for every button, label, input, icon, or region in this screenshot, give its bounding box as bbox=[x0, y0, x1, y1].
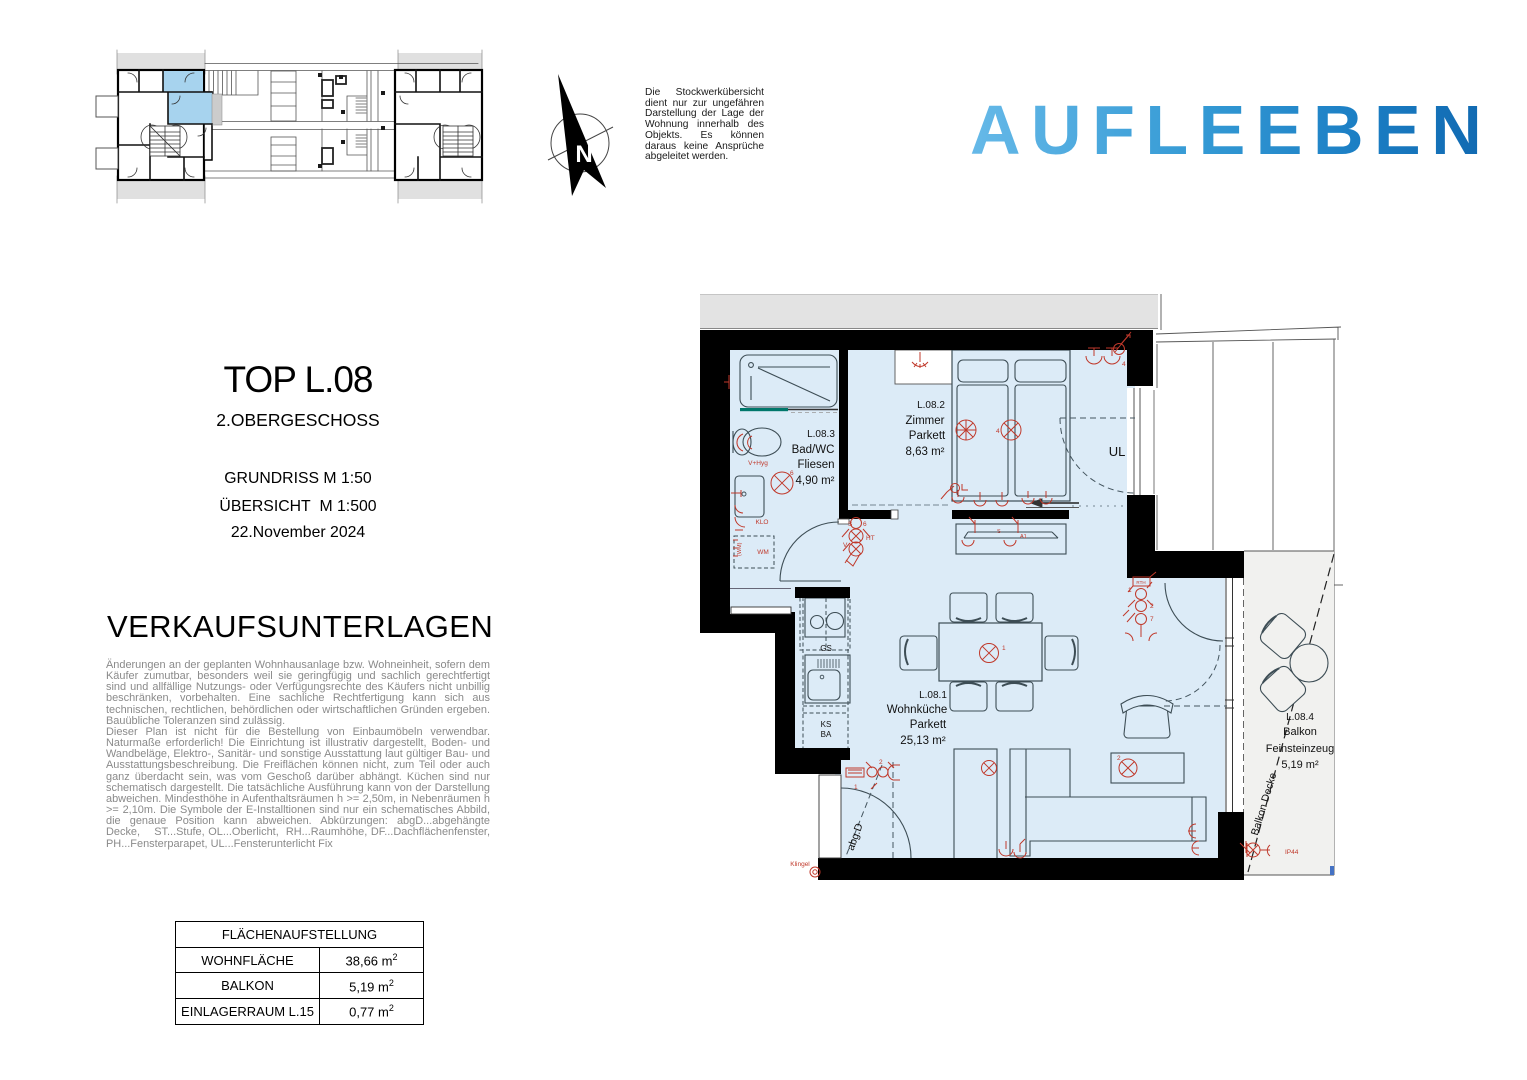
svg-text:S: S bbox=[848, 521, 853, 528]
svg-text:BA: BA bbox=[821, 730, 832, 739]
svg-text:5,19 m²: 5,19 m² bbox=[1281, 759, 1319, 771]
svg-text:GS: GS bbox=[820, 644, 832, 653]
svg-text:Wohnküche: Wohnküche bbox=[887, 704, 948, 716]
svg-text:Feinsteinzeug: Feinsteinzeug bbox=[1266, 743, 1335, 755]
svg-text:L.08.4: L.08.4 bbox=[1286, 712, 1314, 723]
svg-text:6: 6 bbox=[863, 521, 867, 528]
svg-text:A1: A1 bbox=[1020, 534, 1027, 540]
svg-text:1: 1 bbox=[1128, 587, 1132, 594]
svg-text:4: 4 bbox=[1122, 361, 1126, 368]
svg-text:IP44: IP44 bbox=[1285, 849, 1299, 856]
svg-text:8,63 m²: 8,63 m² bbox=[906, 446, 945, 458]
svg-text:RTH: RTH bbox=[1136, 580, 1145, 585]
svg-text:L.08.3: L.08.3 bbox=[807, 429, 835, 440]
svg-text:KS: KS bbox=[821, 720, 832, 729]
svg-text:2: 2 bbox=[1150, 603, 1154, 610]
svg-text:S: S bbox=[997, 529, 1001, 535]
svg-text:4: 4 bbox=[996, 428, 1000, 435]
svg-text:7: 7 bbox=[1150, 616, 1154, 623]
svg-text:L.08.1: L.08.1 bbox=[919, 690, 947, 701]
svg-text:6: 6 bbox=[790, 470, 794, 477]
svg-text:V: V bbox=[843, 542, 848, 549]
svg-text:(WM): (WM) bbox=[737, 542, 743, 556]
svg-text:Bad/WC: Bad/WC bbox=[792, 444, 835, 456]
svg-text:1: 1 bbox=[1002, 645, 1006, 652]
svg-text:V+Hyg: V+Hyg bbox=[748, 460, 768, 467]
svg-text:HT: HT bbox=[866, 535, 875, 542]
svg-text:4,90 m²: 4,90 m² bbox=[796, 475, 835, 487]
svg-text:2: 2 bbox=[1117, 755, 1121, 762]
svg-text:WM: WM bbox=[757, 549, 769, 556]
svg-text:Parkett: Parkett bbox=[910, 719, 947, 731]
svg-text:Balkon: Balkon bbox=[1283, 726, 1317, 738]
svg-text:25,13 m²: 25,13 m² bbox=[900, 735, 946, 747]
svg-text:L.08.2: L.08.2 bbox=[917, 400, 945, 411]
svg-text:Fliesen: Fliesen bbox=[797, 459, 834, 471]
svg-text:Klingel: Klingel bbox=[790, 861, 810, 868]
svg-text:2: 2 bbox=[879, 759, 883, 766]
svg-text:1: 1 bbox=[854, 784, 858, 791]
svg-text:KLO: KLO bbox=[755, 519, 768, 526]
svg-text:Zimmer: Zimmer bbox=[906, 415, 945, 427]
svg-text:UL: UL bbox=[1109, 444, 1126, 459]
svg-text:N: N bbox=[575, 141, 592, 168]
svg-text:Parkett: Parkett bbox=[909, 430, 946, 442]
